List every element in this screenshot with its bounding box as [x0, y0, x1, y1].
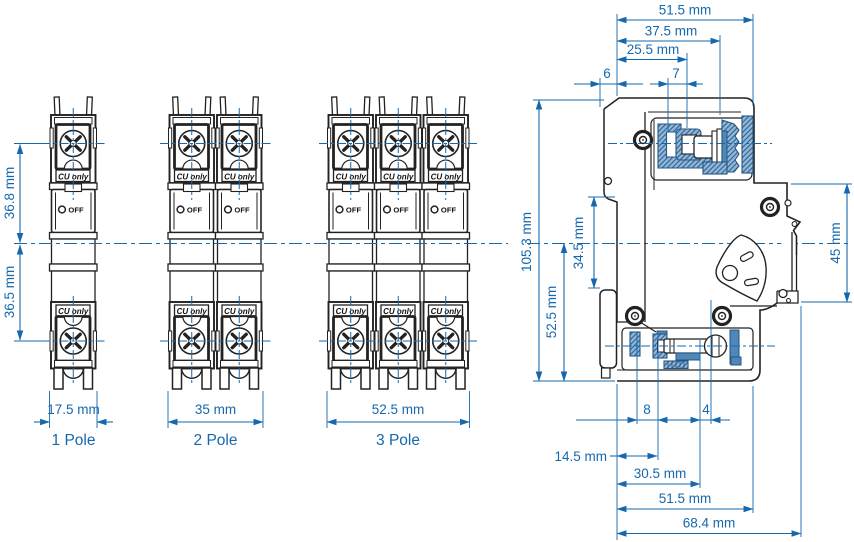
dim-right-45: 45 mm: [828, 222, 843, 263]
dim-bottom-8: 8: [643, 402, 651, 417]
dim-top-37: 37.5 mm: [645, 24, 698, 39]
dim-left-52: 52.5 mm: [544, 286, 559, 339]
dim-bottom-30: 30.5 mm: [634, 466, 687, 481]
dimensions-side: 51.5 mm 37.5 mm 25.5 mm 6 7 105.3 mm 34.…: [519, 3, 852, 541]
trip-cam: [716, 235, 766, 301]
contact-bar-section: [676, 353, 700, 360]
front-view-3-pole: [319, 97, 478, 389]
mounting-hole: [605, 178, 612, 185]
housing-section: [731, 357, 741, 365]
dim-bottom-14: 14.5 mm: [554, 449, 607, 464]
dim-left-34: 34.5 mm: [571, 217, 586, 270]
dim-height-upper: 36.8 mm: [2, 167, 17, 220]
base-section: [703, 162, 727, 174]
front-view-1-pole: [42, 97, 106, 389]
dim-width-3pole: 52.5 mm: [372, 402, 425, 417]
dim-width-2pole: 35 mm: [195, 402, 236, 417]
bottom-terminal-section: [622, 328, 753, 370]
label-2pole: 2 Pole: [194, 432, 238, 449]
pivot-hole: [785, 200, 791, 206]
dim-top-6: 6: [603, 66, 611, 81]
housing-section: [742, 116, 753, 173]
label-1pole: 1 Pole: [52, 432, 96, 449]
dim-top-25: 25.5 mm: [627, 42, 680, 57]
dim-bottom-68: 68.4 mm: [683, 516, 736, 531]
dim-top-51: 51.5 mm: [659, 3, 712, 18]
serrated-strip-section: [664, 361, 688, 369]
case-outline-top: [604, 98, 800, 255]
clamp-section: [630, 332, 640, 356]
label-3pole: 3 Pole: [376, 432, 420, 449]
side-view: [600, 98, 800, 381]
washer-section: [722, 131, 727, 162]
din-clip: [600, 290, 617, 378]
dim-left-105: 105.3 mm: [519, 212, 534, 272]
dim-bottom-4: 4: [702, 402, 710, 417]
dim-bottom-51: 51.5 mm: [659, 491, 712, 506]
breaker-dimension-drawing: CU only OFF CU only: [0, 0, 854, 542]
technical-drawing-page: CU only OFF CU only: [0, 0, 854, 542]
front-view-2-pole: [160, 97, 271, 389]
dim-height-lower: 36.5 mm: [2, 266, 17, 319]
dim-top-7: 7: [672, 66, 680, 81]
dim-width-1pole: 17.5 mm: [47, 402, 100, 417]
